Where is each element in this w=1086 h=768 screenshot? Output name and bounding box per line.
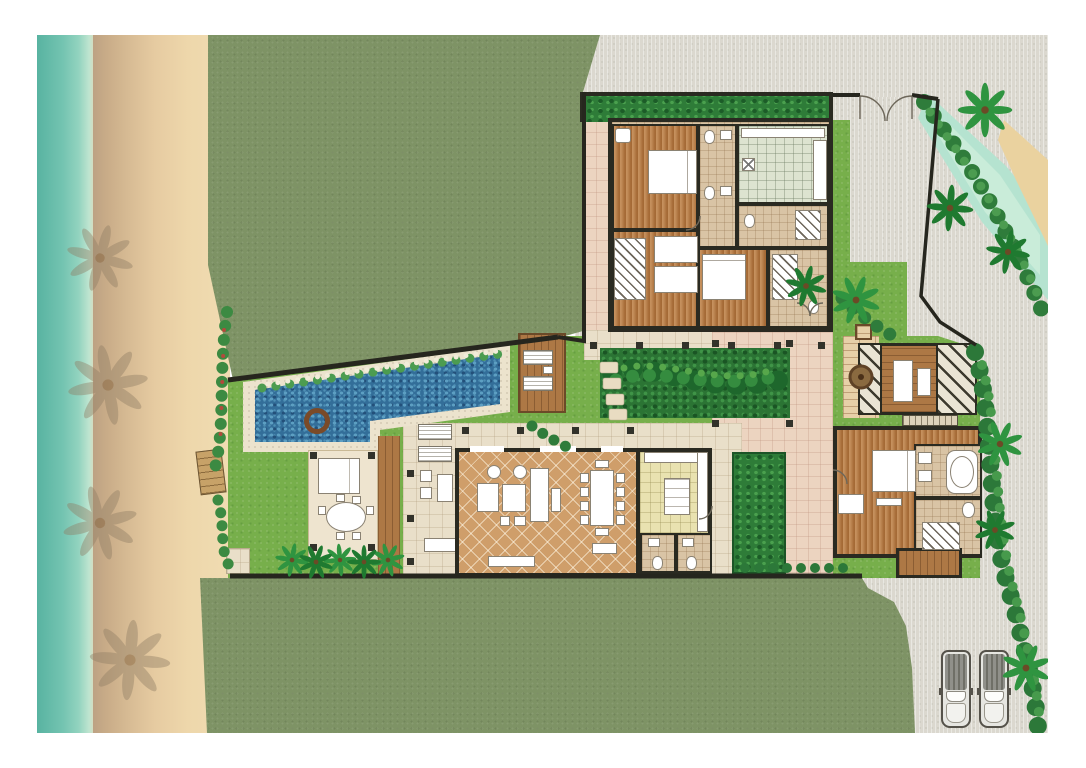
palm-trees [272, 83, 1057, 700]
page-margin-top [0, 0, 1086, 35]
entry-gate-swing [887, 96, 912, 121]
boundary-wall-northwest [228, 337, 558, 380]
kitchen-door-swing [699, 506, 712, 519]
site-plan [0, 0, 1086, 768]
boundary-wall-gate-east [912, 95, 938, 99]
entry-gate-swing [860, 96, 885, 121]
page-margin-right [1048, 0, 1086, 768]
bedroom-door-swing [686, 216, 700, 230]
suite-door-swing [833, 470, 847, 484]
court-medallion-center [858, 374, 864, 380]
palm-shadows [49, 217, 174, 704]
garden-shrub-border [218, 500, 232, 570]
pocket-garden-shrubs [532, 426, 572, 450]
garden-shrub-border [214, 312, 227, 472]
page-margin-left [0, 0, 37, 768]
boundary-wall-link [558, 92, 584, 341]
court-door-swing [797, 303, 810, 316]
page-margin-bottom [0, 733, 1086, 768]
overlay-drawing [0, 0, 1086, 768]
court-door-swing [810, 303, 823, 316]
